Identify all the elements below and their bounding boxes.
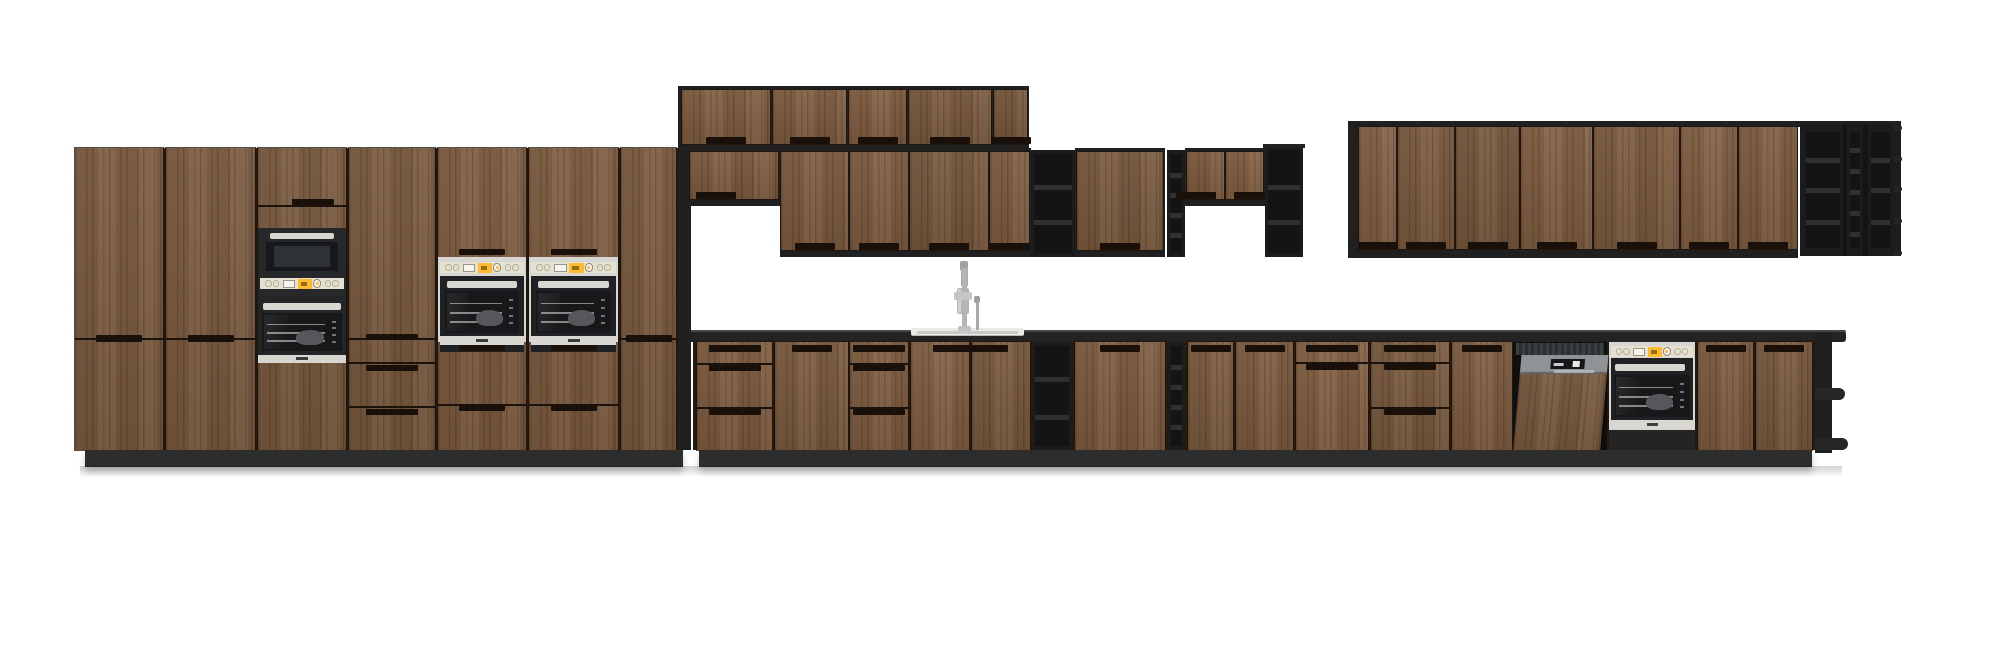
kitchen-render-canvas	[0, 0, 2000, 662]
shadows	[0, 0, 2000, 662]
floor-shadow	[80, 466, 1842, 477]
